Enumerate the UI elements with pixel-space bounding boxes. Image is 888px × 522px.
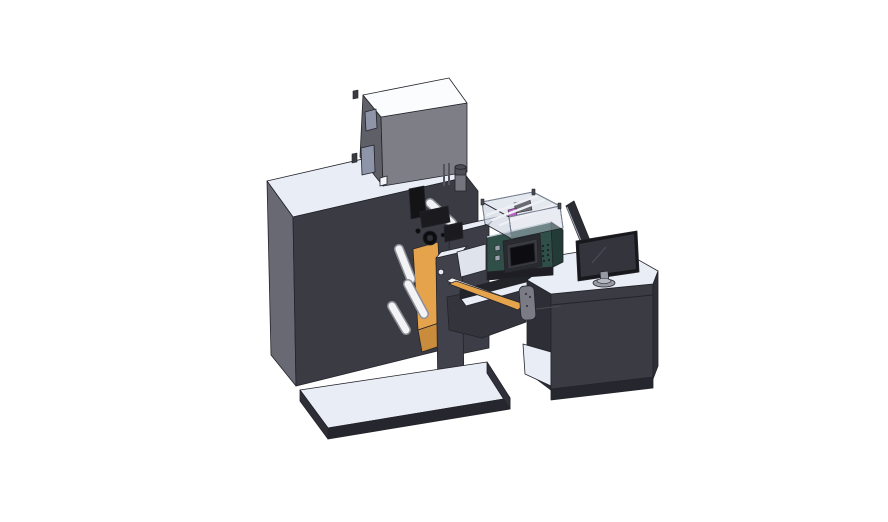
guard-corner-post-2	[532, 189, 535, 195]
column-knob	[438, 269, 444, 275]
coder-button-1	[495, 245, 500, 251]
coder-vent-dot	[547, 249, 549, 251]
coder-vent-dot	[542, 250, 544, 252]
sensor-dot-1	[525, 293, 527, 295]
coder-vent-dot	[542, 255, 544, 257]
print-head-bracket	[444, 222, 463, 242]
guard-corner-post-1	[481, 199, 484, 205]
cabinet-window-lower	[361, 145, 375, 175]
cabinet-hinge-tab-1	[353, 90, 358, 99]
cad-render-canvas	[0, 0, 888, 522]
exhaust-cylinder-top	[455, 165, 466, 170]
monitor-base-top	[597, 279, 611, 284]
sensor-dot-2	[529, 296, 531, 298]
guard-corner-post-3	[558, 203, 561, 209]
cabinet-vent-slot-1	[443, 164, 445, 186]
coder-vent-dot	[548, 259, 550, 261]
cabinet-label-plate	[380, 176, 387, 186]
cabinet-vent-slot-2	[448, 163, 450, 185]
cabinet-front-face	[381, 103, 467, 186]
cabinet-window-upper	[365, 109, 377, 131]
sensor-dot-3	[526, 305, 528, 307]
idler-gear-right	[441, 233, 445, 237]
desk-right-face	[653, 271, 658, 379]
coder-button-2	[495, 255, 500, 261]
coder-vent-dot	[547, 244, 549, 246]
coder-vent-dot	[543, 260, 545, 262]
coder-vent-dot	[542, 245, 544, 247]
cad-viewport	[0, 0, 888, 522]
drive-gear-hub	[427, 235, 433, 241]
cabinet-hinge-tab-2	[352, 153, 357, 163]
idler-gear-left	[416, 229, 421, 234]
coder-vent-dot	[547, 254, 549, 256]
sensor-bracket	[519, 285, 536, 320]
